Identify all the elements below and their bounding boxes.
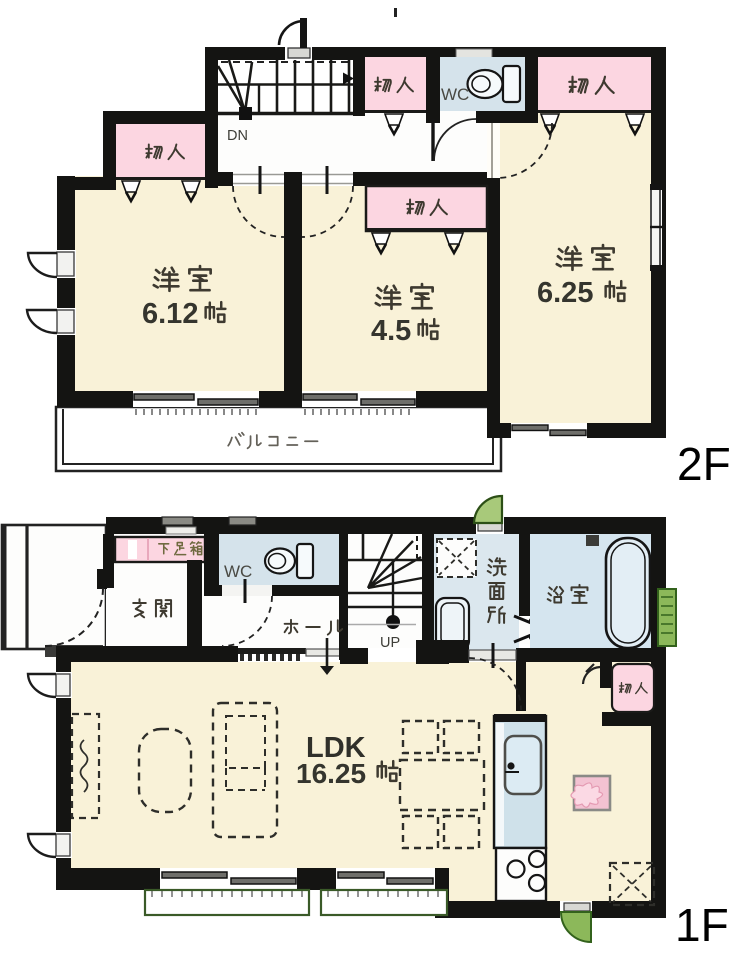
svg-text:6.12: 6.12 [142,298,198,330]
svg-text:WC: WC [224,562,252,581]
svg-text:2F: 2F [677,438,731,490]
svg-text:DN: DN [227,128,248,144]
svg-text:WC: WC [441,85,469,104]
svg-text:16.25: 16.25 [296,758,366,789]
svg-text:1F: 1F [675,899,729,951]
svg-text:6.25: 6.25 [537,277,593,309]
svg-text:UP: UP [380,635,400,651]
svg-text:4.5: 4.5 [371,315,411,347]
